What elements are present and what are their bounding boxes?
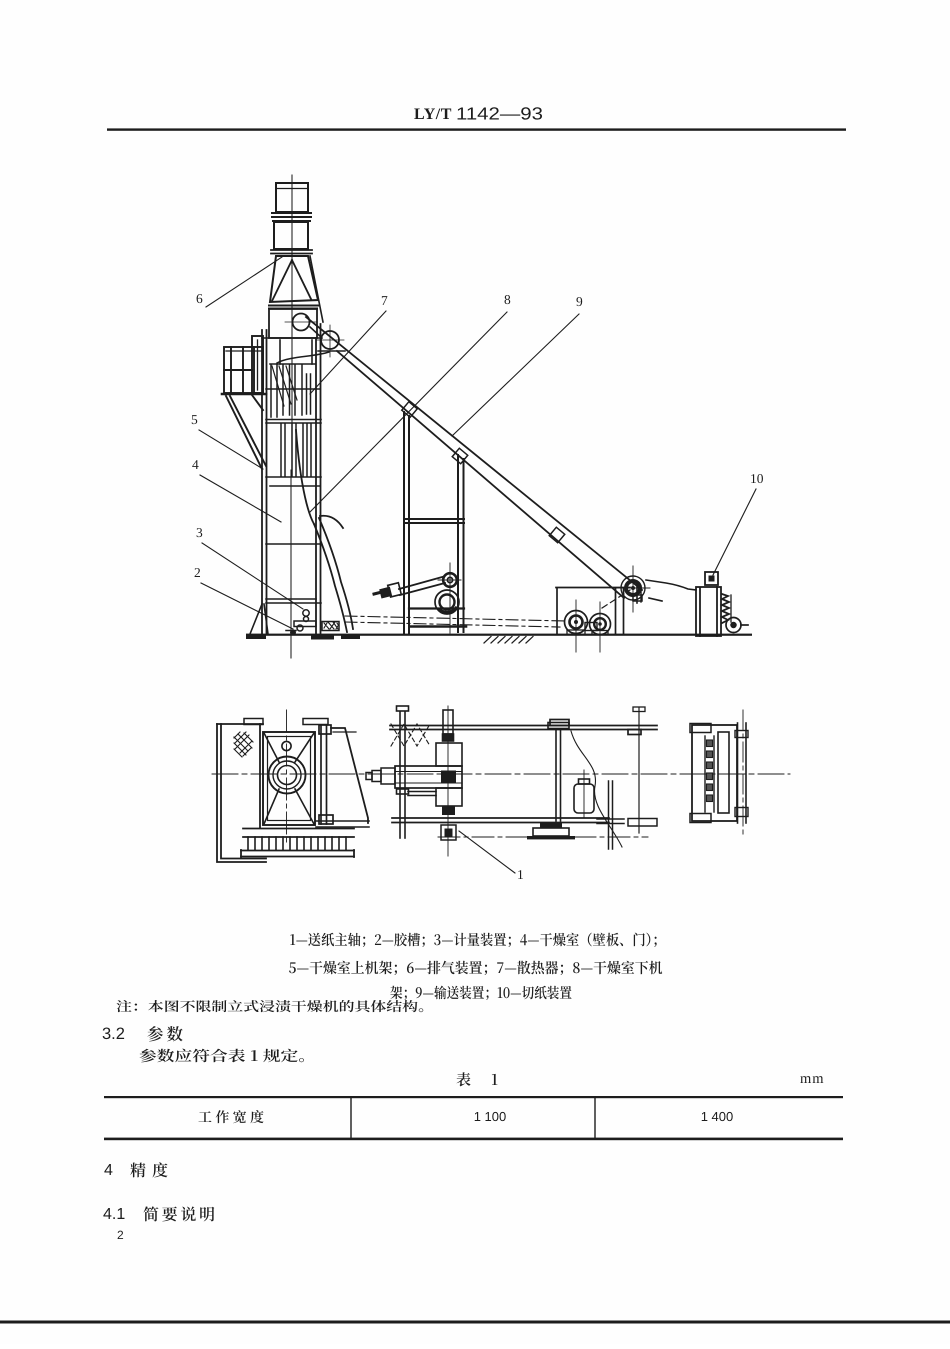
svg-text:2: 2 xyxy=(194,565,201,580)
svg-text:10: 10 xyxy=(750,471,764,486)
svg-text:4.1: 4.1 xyxy=(103,1206,125,1223)
svg-text:简要说明: 简要说明 xyxy=(143,1202,215,1225)
svg-text:5—干燥室上机架；6—排气装置；7—散热器；8—干燥室下机: 5—干燥室上机架；6—排气装置；7—散热器；8—干燥室下机 xyxy=(289,957,663,978)
svg-text:精度: 精度 xyxy=(130,1158,168,1181)
svg-text:7: 7 xyxy=(381,293,388,308)
svg-text:注：本图不限制立式浸渍干燥机的具体结构。: 注：本图不限制立式浸渍干燥机的具体结构。 xyxy=(116,996,434,1015)
svg-text:1142—93: 1142—93 xyxy=(456,104,543,124)
svg-text:表 1: 表 1 xyxy=(456,1069,498,1090)
svg-text:5: 5 xyxy=(191,412,198,427)
svg-text:工作宽度: 工作宽度 xyxy=(198,1107,264,1127)
svg-text:mm: mm xyxy=(800,1071,825,1087)
svg-text:1 100: 1 100 xyxy=(474,1109,507,1124)
svg-text:3.2: 3.2 xyxy=(102,1025,125,1043)
svg-text:9: 9 xyxy=(576,294,583,309)
svg-text:6: 6 xyxy=(196,291,203,306)
svg-text:参数应符合表 1 规定。: 参数应符合表 1 规定。 xyxy=(139,1045,316,1066)
svg-text:LY/T: LY/T xyxy=(414,106,452,123)
svg-text:1—送纸主轴；2—胶槽；3—计量装置；4—干燥室（壁板、门）: 1—送纸主轴；2—胶槽；3—计量装置；4—干燥室（壁板、门）； xyxy=(290,929,666,950)
svg-text:参数: 参数 xyxy=(147,1021,184,1045)
svg-text:2: 2 xyxy=(117,1228,124,1242)
svg-text:4: 4 xyxy=(192,457,199,472)
svg-text:3: 3 xyxy=(196,525,203,540)
svg-text:1 400: 1 400 xyxy=(701,1109,734,1124)
svg-text:1: 1 xyxy=(517,867,524,882)
svg-text:4: 4 xyxy=(104,1162,113,1179)
svg-text:8: 8 xyxy=(504,292,511,307)
